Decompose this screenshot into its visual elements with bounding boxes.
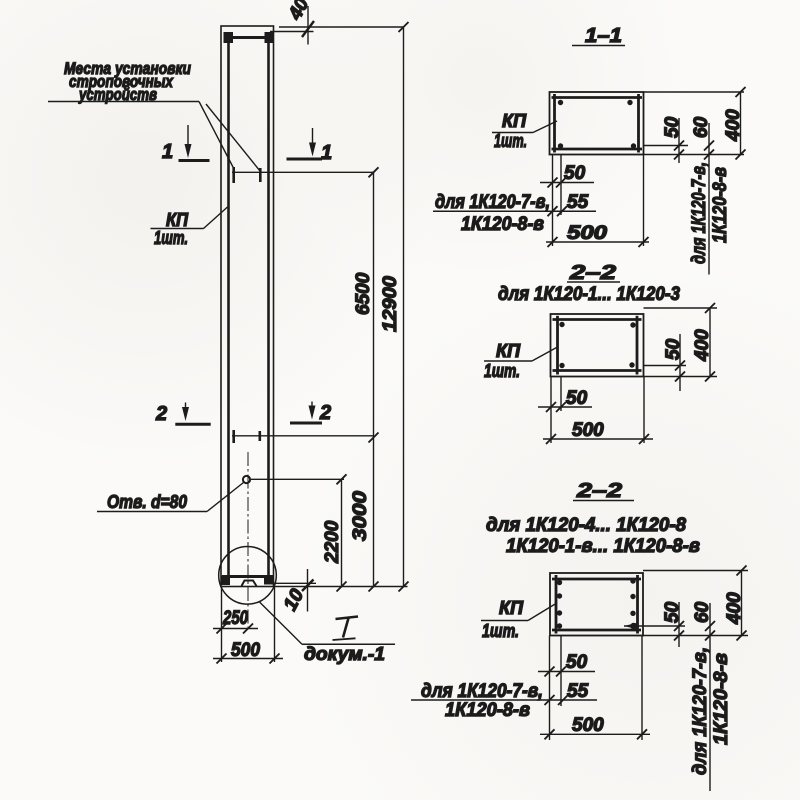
svg-text:1шт.: 1шт. bbox=[494, 131, 527, 151]
svg-text:60: 60 bbox=[692, 601, 713, 623]
svg-text:55: 55 bbox=[567, 192, 589, 213]
svg-text:2–2: 2–2 bbox=[569, 262, 616, 284]
svg-text:Отв. d=80: Отв. d=80 bbox=[107, 492, 187, 512]
svg-text:50: 50 bbox=[566, 652, 588, 673]
svg-text:КП: КП bbox=[496, 341, 521, 361]
svg-text:1К120-8-в: 1К120-8-в bbox=[711, 653, 732, 745]
svg-text:400: 400 bbox=[723, 109, 744, 142]
svg-text:400: 400 bbox=[724, 592, 745, 625]
svg-text:500: 500 bbox=[572, 715, 604, 736]
svg-text:для 1К120-7-в,: для 1К120-7-в, bbox=[690, 647, 711, 775]
svg-text:2: 2 bbox=[155, 403, 167, 425]
svg-text:250: 250 bbox=[222, 608, 248, 629]
svg-text:1К120-1-в... 1К120-8-в: 1К120-1-в... 1К120-8-в bbox=[506, 536, 700, 557]
svg-text:50: 50 bbox=[662, 116, 683, 138]
svg-text:50: 50 bbox=[663, 338, 684, 360]
svg-text:55: 55 bbox=[567, 681, 589, 702]
svg-text:для 1К120-7-в,: для 1К120-7-в, bbox=[435, 192, 550, 213]
svg-text:для 1К120-4... 1К120-8: для 1К120-4... 1К120-8 bbox=[486, 515, 686, 536]
svg-text:6500: 6500 bbox=[353, 272, 374, 315]
svg-text:400: 400 bbox=[692, 329, 713, 362]
svg-text:1шт.: 1шт. bbox=[484, 361, 520, 381]
svg-text:для 1К120-7-в,: для 1К120-7-в, bbox=[689, 162, 710, 264]
svg-text:3000: 3000 bbox=[350, 491, 371, 541]
svg-text:50: 50 bbox=[662, 601, 683, 623]
svg-text:60: 60 bbox=[691, 116, 712, 138]
svg-text:для 1К120-7-в,: для 1К120-7-в, bbox=[421, 681, 543, 702]
svg-text:КП: КП bbox=[166, 210, 189, 230]
svg-text:1: 1 bbox=[162, 141, 173, 163]
svg-text:500: 500 bbox=[567, 223, 608, 244]
svg-text:500: 500 bbox=[572, 420, 604, 441]
svg-text:1К120-8-в: 1К120-8-в bbox=[710, 167, 731, 243]
svg-text:40: 40 bbox=[284, 0, 313, 24]
svg-text:1: 1 bbox=[321, 142, 332, 164]
svg-text:1К120-8-в: 1К120-8-в bbox=[445, 700, 530, 721]
svg-text:1шт.: 1шт. bbox=[482, 621, 519, 641]
svg-text:КП: КП bbox=[499, 598, 524, 618]
svg-text:500: 500 bbox=[231, 640, 260, 661]
svg-text:12900: 12900 bbox=[380, 276, 401, 332]
svg-text:докум.-1: докум.-1 bbox=[304, 644, 385, 664]
svg-text:50: 50 bbox=[566, 388, 588, 409]
svg-text:1–1: 1–1 bbox=[585, 25, 622, 47]
svg-text:2–2: 2–2 bbox=[576, 480, 622, 502]
svg-text:1шт.: 1шт. bbox=[154, 228, 188, 248]
svg-text:2200: 2200 bbox=[322, 520, 343, 564]
svg-text:для 1К120-1... 1К120-3: для 1К120-1... 1К120-3 bbox=[498, 284, 680, 305]
svg-text:КП: КП bbox=[502, 111, 527, 131]
svg-text:2: 2 bbox=[319, 402, 331, 424]
svg-text:50: 50 bbox=[564, 163, 586, 184]
svg-text:1К120-8-в: 1К120-8-в bbox=[461, 214, 544, 235]
